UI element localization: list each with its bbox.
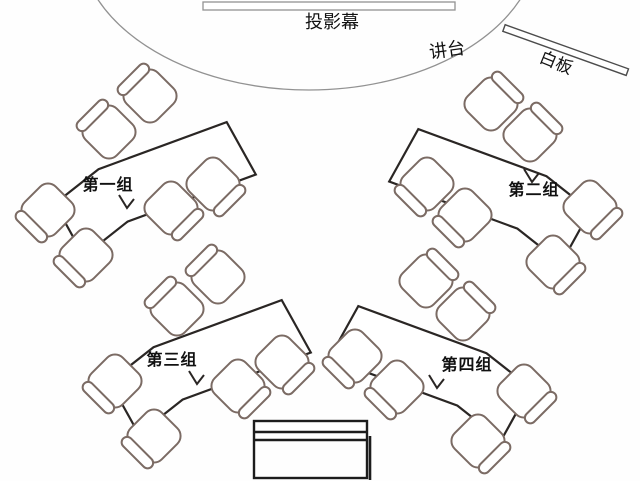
table-group: 第四组 (319, 245, 560, 477)
group-label: 第一组 (82, 175, 133, 194)
table-groups-layer: 第一组第二组第三组第四组 (12, 60, 626, 477)
chair-seat (78, 101, 140, 163)
classroom-layout-diagram: 投影幕 讲台 白板 第一组第二组第三组第四组 (0, 0, 640, 481)
group-label: 第四组 (441, 355, 492, 374)
teacher-desk (254, 421, 370, 480)
podium-label: 讲台 (428, 38, 466, 63)
chair (12, 179, 79, 246)
group-label: 第二组 (508, 180, 559, 199)
table-group: 第三组 (79, 241, 318, 472)
projection-screen (203, 2, 455, 10)
chair-seat (119, 65, 181, 127)
group-label: 第三组 (146, 350, 197, 369)
projection-screen-label: 投影幕 (305, 12, 359, 32)
